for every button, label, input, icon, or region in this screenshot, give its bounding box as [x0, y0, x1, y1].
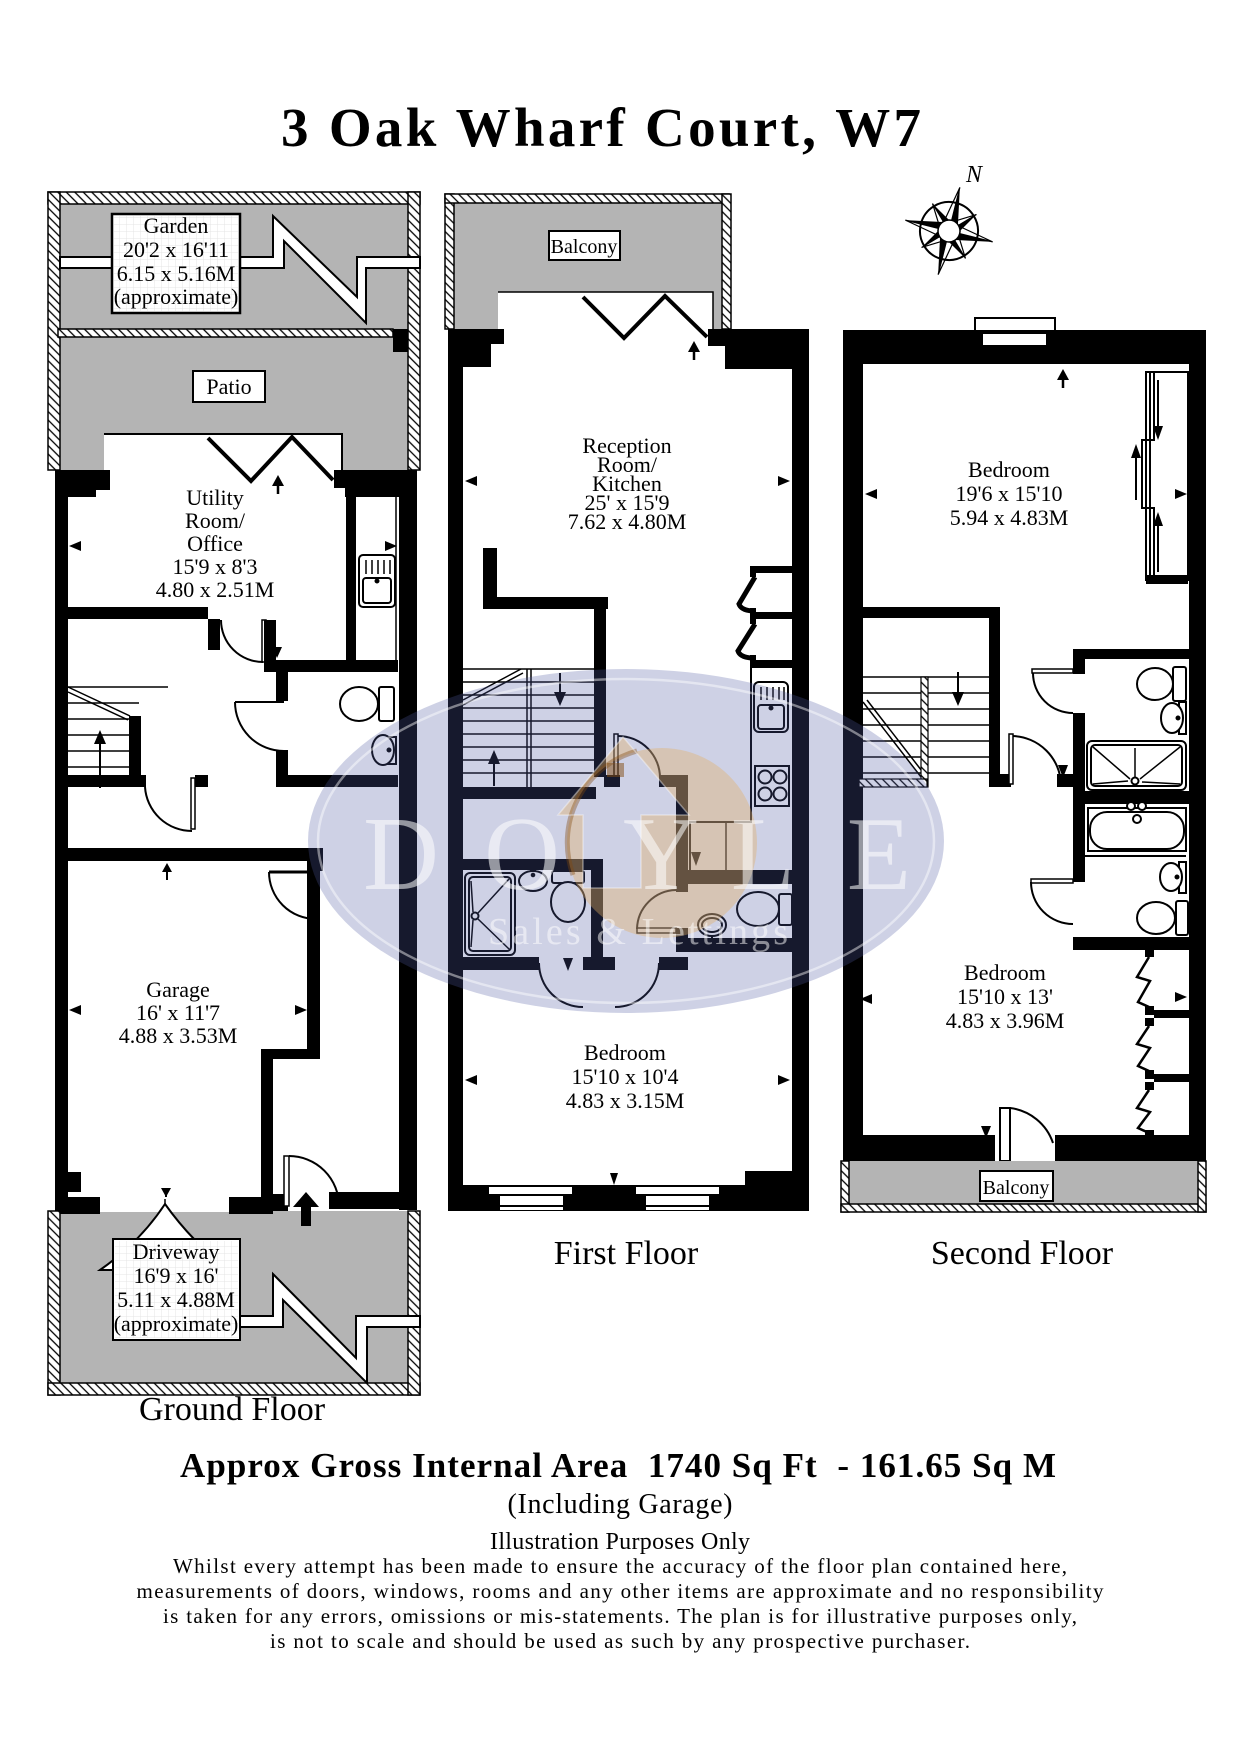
svg-text:E: E [847, 795, 911, 912]
svg-text:4.83 x 3.15M: 4.83 x 3.15M [566, 1088, 685, 1113]
svg-text:4.83 x 3.96M: 4.83 x 3.96M [946, 1008, 1065, 1033]
svg-text:6.15 x 5.16M: 6.15 x 5.16M [117, 261, 236, 286]
svg-text:(approximate): (approximate) [114, 284, 239, 309]
svg-text:O: O [484, 795, 560, 912]
svg-text:Bedroom: Bedroom [584, 1040, 666, 1065]
svg-text:7.62 x 4.80M: 7.62 x 4.80M [568, 509, 687, 534]
svg-text:is taken for any errors, omiss: is taken for any errors, omissions or mi… [163, 1604, 1077, 1628]
svg-text:Second Floor: Second Floor [931, 1235, 1114, 1272]
svg-text:Balcony: Balcony [551, 236, 618, 258]
svg-text:N: N [965, 162, 984, 188]
svg-text:Illustration Purposes Only: Illustration Purposes Only [490, 1529, 750, 1555]
svg-text:Y: Y [623, 795, 699, 912]
svg-text:Bedroom: Bedroom [968, 457, 1050, 482]
svg-text:Garden: Garden [144, 213, 209, 238]
svg-text:Patio: Patio [206, 374, 251, 399]
svg-text:(Including Garage): (Including Garage) [508, 1489, 733, 1520]
svg-text:5.11 x 4.88M: 5.11 x 4.88M [117, 1287, 235, 1312]
svg-text:D: D [363, 795, 439, 912]
svg-text:19'6 x 15'10: 19'6 x 15'10 [956, 481, 1063, 506]
svg-text:16' x 11'7: 16' x 11'7 [136, 1000, 220, 1025]
svg-text:3 Oak Wharf Court, W7: 3 Oak Wharf Court, W7 [281, 97, 921, 158]
svg-text:is not to scale and should be: is not to scale and should be used as su… [270, 1629, 970, 1653]
svg-text:Approx Gross Internal Area 17: Approx Gross Internal Area 1740 Sq Ft - … [180, 1446, 1056, 1485]
svg-text:Utility: Utility [186, 485, 243, 510]
svg-text:5.94 x 4.83M: 5.94 x 4.83M [950, 505, 1069, 530]
svg-text:15'10 x 10'4: 15'10 x 10'4 [572, 1064, 679, 1089]
svg-text:Sales & Lettings: Sales & Lettings [488, 911, 788, 953]
svg-text:Balcony: Balcony [983, 1177, 1050, 1199]
svg-text:Ground Floor: Ground Floor [139, 1391, 326, 1428]
svg-text:First Floor: First Floor [554, 1235, 699, 1272]
svg-text:15'9 x 8'3: 15'9 x 8'3 [173, 554, 258, 579]
svg-text:Whilst every attempt has been: Whilst every attempt has been made to en… [173, 1554, 1067, 1578]
svg-text:Garage: Garage [146, 977, 210, 1002]
svg-text:measurements of doors, windows: measurements of doors, windows, rooms an… [137, 1579, 1105, 1603]
svg-text:4.88 x 3.53M: 4.88 x 3.53M [119, 1023, 238, 1048]
svg-text:16'9 x 16': 16'9 x 16' [134, 1263, 219, 1288]
svg-text:4.80 x 2.51M: 4.80 x 2.51M [156, 577, 275, 602]
svg-text:Office: Office [187, 531, 243, 556]
svg-text:Bedroom: Bedroom [964, 960, 1046, 985]
svg-text:Driveway: Driveway [133, 1239, 220, 1264]
svg-text:Room/: Room/ [185, 508, 246, 533]
svg-text:(approximate): (approximate) [114, 1311, 239, 1336]
svg-text:L: L [731, 795, 795, 912]
svg-text:15'10 x 13': 15'10 x 13' [957, 984, 1053, 1009]
svg-text:20'2 x 16'11: 20'2 x 16'11 [123, 237, 229, 262]
